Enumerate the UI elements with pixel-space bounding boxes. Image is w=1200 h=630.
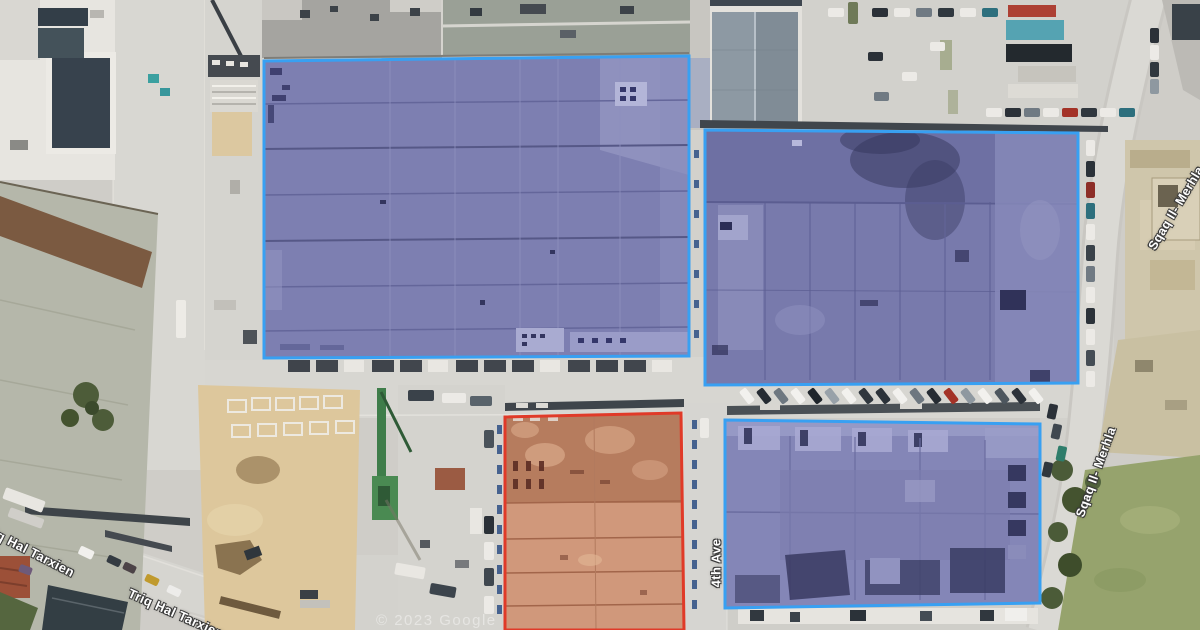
gabled-roof-building xyxy=(710,0,802,126)
parcel-warehouse-southeast[interactable] xyxy=(725,420,1040,608)
parcel-warehouse-south-central[interactable] xyxy=(505,413,684,630)
parcel-warehouse-northwest[interactable] xyxy=(264,56,690,358)
shed-roof xyxy=(435,468,465,490)
roof-detail xyxy=(505,413,684,630)
van xyxy=(700,418,709,438)
truck xyxy=(176,300,186,338)
parcel-warehouse-northeast[interactable] xyxy=(705,126,1078,385)
satellite-map: Triq Hal Tarxien Triq Hal Tarxien 4th Av… xyxy=(0,0,1200,630)
map-attribution: © 2023 Google xyxy=(376,612,497,629)
map-canvas xyxy=(0,0,1200,630)
west-strip-lot xyxy=(205,0,264,360)
street-label-4th-ave: 4th Ave xyxy=(709,539,724,588)
south-band-vehicles xyxy=(738,608,1038,624)
